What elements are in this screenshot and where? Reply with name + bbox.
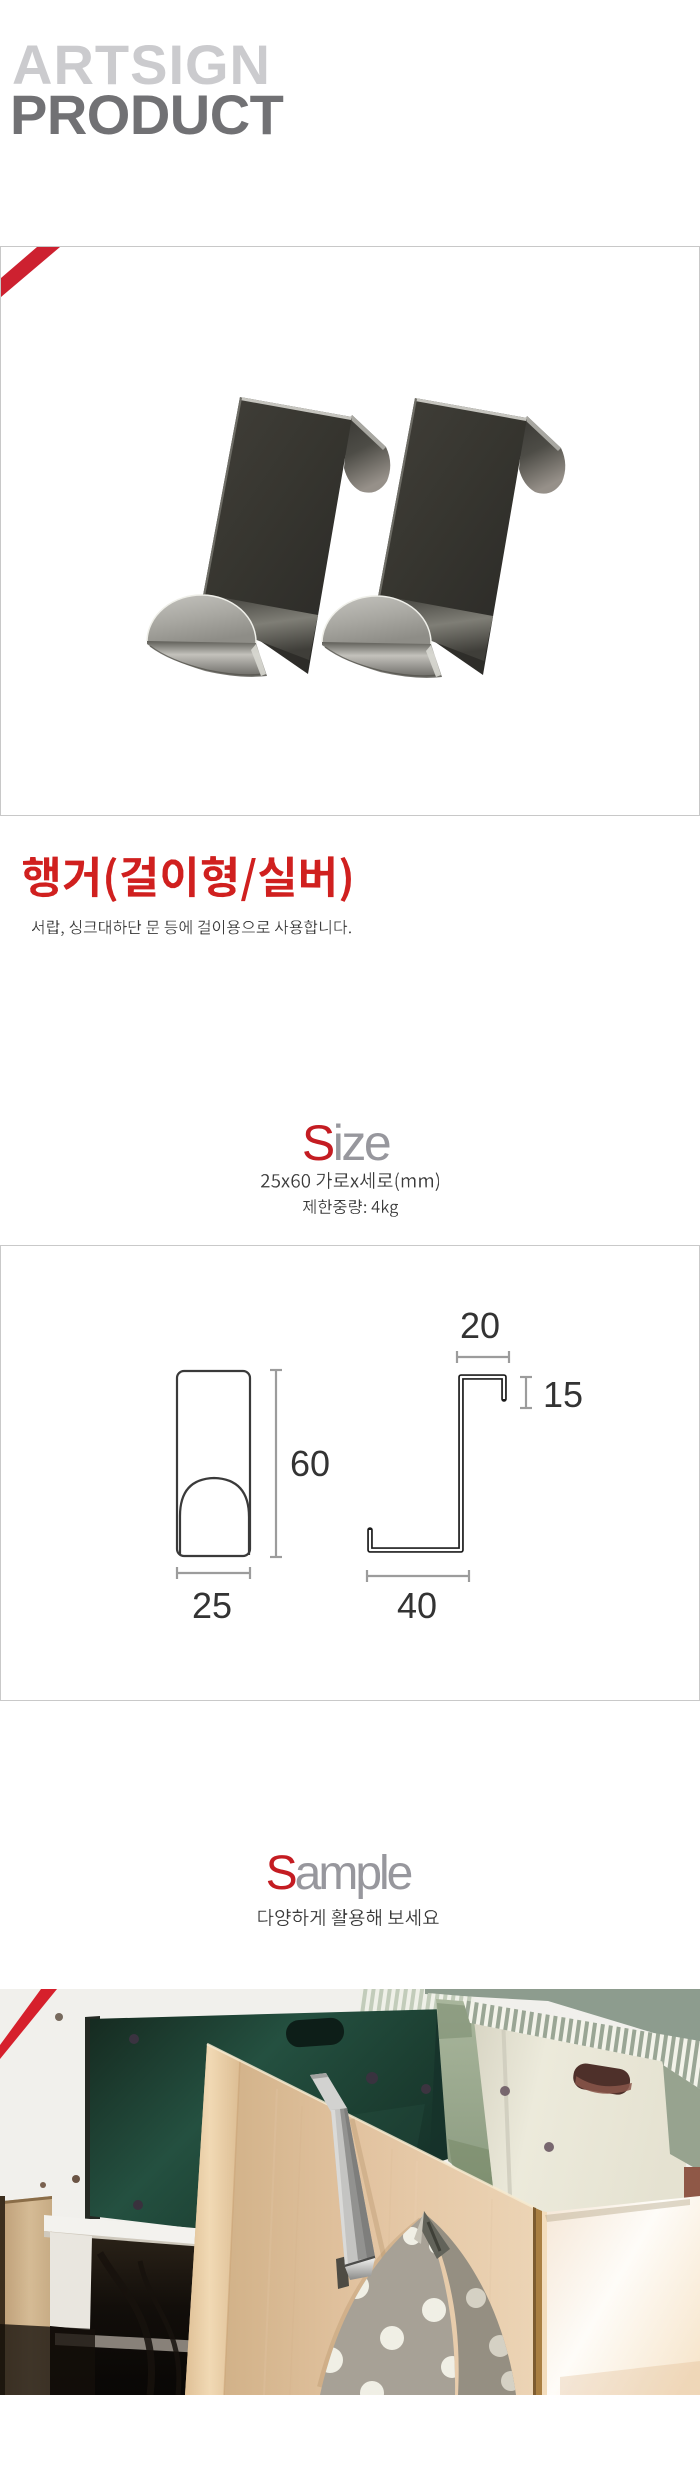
svg-text:25: 25 (192, 1585, 232, 1626)
svg-text:40: 40 (397, 1585, 437, 1626)
svg-text:60: 60 (290, 1443, 330, 1484)
svg-text:20: 20 (460, 1305, 500, 1346)
svg-text:15: 15 (543, 1374, 583, 1415)
